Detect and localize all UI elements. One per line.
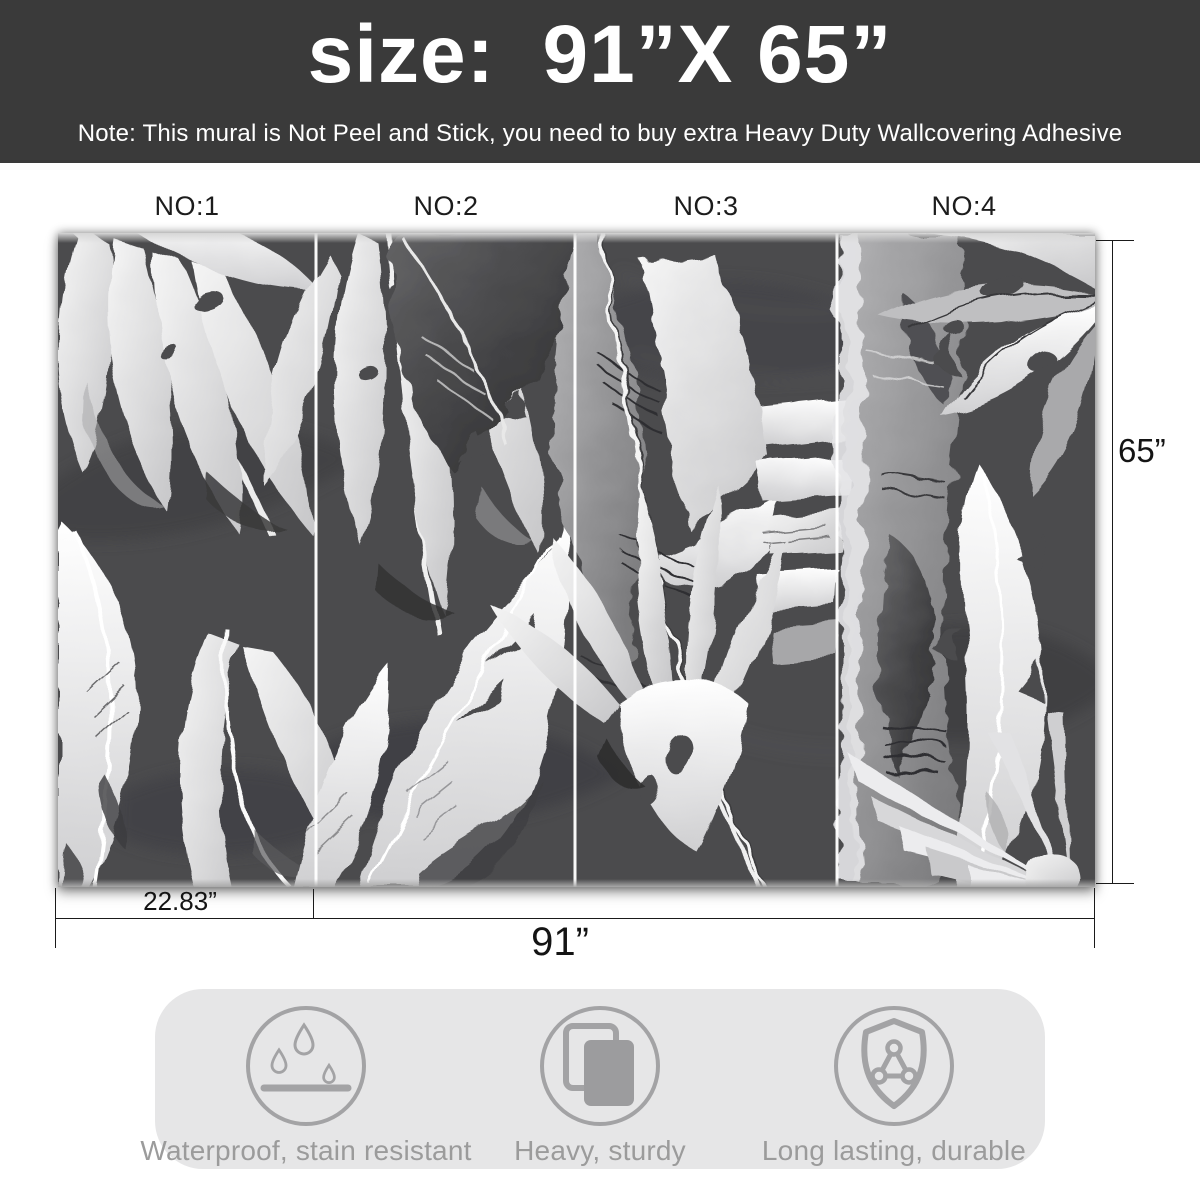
- mural-image: [58, 233, 1095, 887]
- heavy-icon: [536, 1002, 664, 1130]
- panel-label-no4: NO:4: [931, 191, 996, 222]
- height-dimension-label: 65”: [1118, 432, 1166, 470]
- panel-divider-2: [574, 233, 577, 887]
- feature-durable: Long lasting, durable: [747, 989, 1041, 1167]
- panel-divider-3: [836, 233, 839, 887]
- width-dimension-tick-left: [55, 888, 56, 948]
- adhesive-note: Note: This mural is Not Peel and Stick, …: [0, 120, 1200, 148]
- height-dimension-tick-bottom: [1096, 883, 1134, 884]
- total-width-label: 91”: [531, 920, 589, 965]
- panel-width-tick: [313, 889, 314, 918]
- mural-illustration: [58, 233, 1095, 887]
- panel-label-no3: NO:3: [673, 191, 738, 222]
- feature-label-durable: Long lasting, durable: [762, 1135, 1026, 1167]
- panel-label-no1: NO:1: [154, 191, 219, 222]
- panel-divider-1: [315, 233, 318, 887]
- feature-heavy: Heavy, sturdy: [453, 989, 747, 1167]
- feature-label-waterproof: Waterproof, stain resistant: [140, 1135, 471, 1167]
- size-banner: size: 91”X 65” Note: This mural is Not P…: [0, 0, 1200, 163]
- width-dimension-tick-right: [1094, 888, 1095, 948]
- width-dimension-line: [55, 918, 1095, 919]
- height-dimension-line: [1112, 240, 1113, 883]
- shield-icon: [830, 1002, 958, 1130]
- feature-waterproof: Waterproof, stain resistant: [159, 989, 453, 1167]
- size-title: size: 91”X 65”: [0, 8, 1200, 102]
- product-infographic: size: 91”X 65” Note: This mural is Not P…: [0, 0, 1200, 1177]
- feature-label-heavy: Heavy, sturdy: [514, 1135, 686, 1167]
- waterproof-icon: [242, 1002, 370, 1130]
- panel-label-no2: NO:2: [413, 191, 478, 222]
- feature-strip: Waterproof, stain resistant Heavy, sturd…: [155, 989, 1045, 1169]
- panel-width-label: 22.83”: [143, 886, 217, 917]
- height-dimension-tick-top: [1096, 240, 1134, 241]
